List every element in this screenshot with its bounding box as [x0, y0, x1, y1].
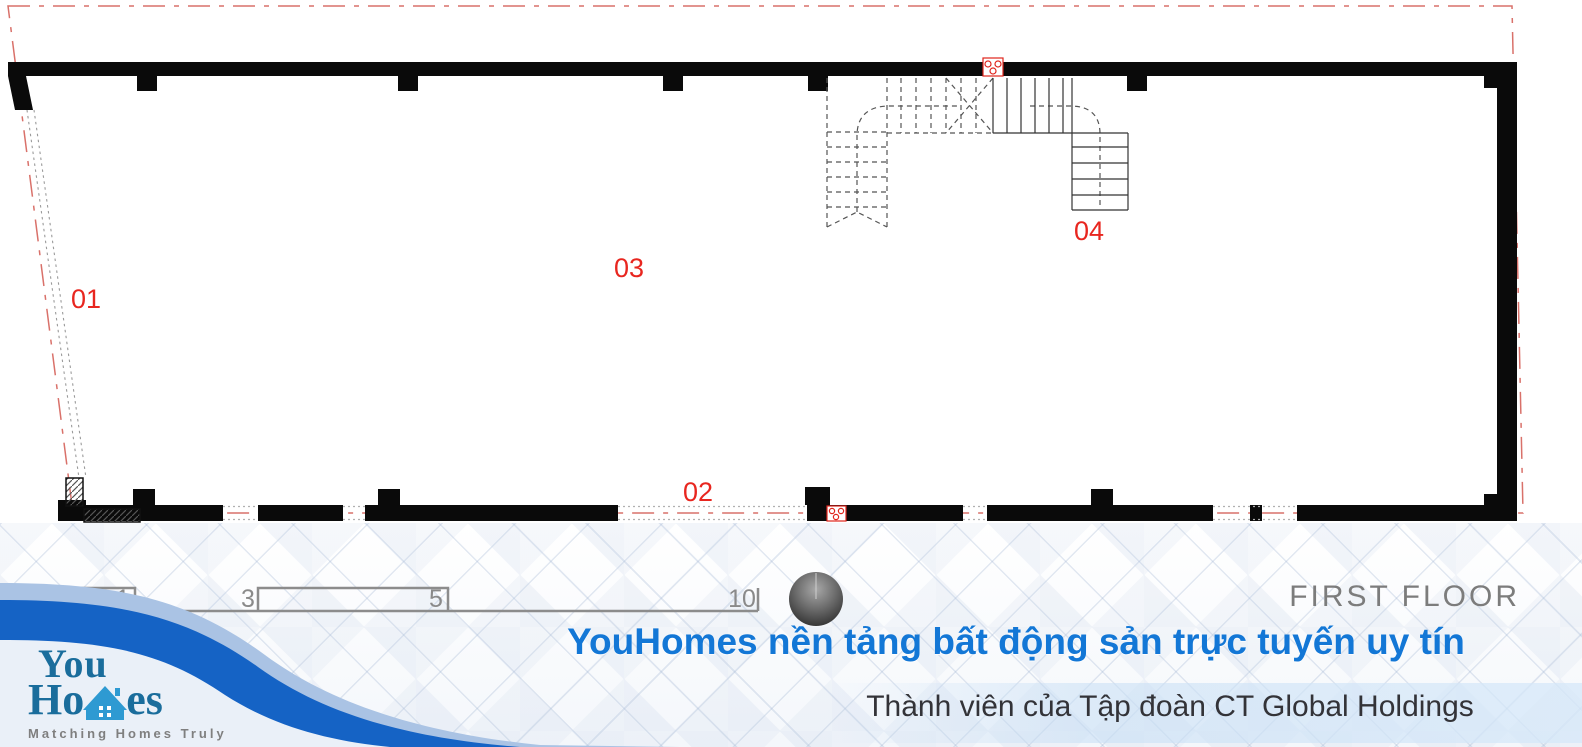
- scale-tick-10: 10: [728, 585, 756, 613]
- column: [133, 489, 155, 505]
- column: [663, 76, 683, 91]
- right-wall: [1497, 62, 1517, 520]
- bottom-wall-segment: [365, 505, 618, 521]
- bottom-wall-segment: [258, 505, 343, 521]
- youhomes-slogan: YouHomes nền tảng bất động sản trực tuyế…: [520, 621, 1512, 663]
- column: [1484, 494, 1497, 506]
- logo-line2-suffix: es: [126, 678, 163, 722]
- staircase: [827, 78, 1128, 227]
- logo-line2-prefix: Ho: [28, 678, 84, 722]
- left-slanted-wall-stub: [8, 76, 33, 110]
- room-label-01: 01: [71, 284, 101, 314]
- top-wall: [8, 62, 1517, 76]
- floor-title: FIRST FLOOR: [1289, 580, 1520, 614]
- column: [398, 76, 418, 91]
- room-label-02: 02: [683, 477, 713, 507]
- column: [1091, 489, 1113, 505]
- column: [805, 487, 830, 505]
- room-label-04: 04: [1074, 216, 1104, 246]
- logo-line2: Ho es: [28, 678, 227, 722]
- floor-plan-drawing: 01 02 03 04: [0, 0, 1582, 620]
- stair-solid-flight: [993, 78, 1128, 210]
- bottom-wall-post: [1250, 505, 1262, 521]
- north-indicator-sphere-icon: [789, 572, 843, 626]
- property-boundary-line: [8, 6, 1523, 513]
- bottom-wall-segment: [1297, 505, 1517, 521]
- membership-text: Thành viên của Tập đoàn CT Global Holdin…: [830, 690, 1510, 724]
- floorplan-page: 01 02 03 04 0 1 3 5 10 FIRST FLOOR: [0, 0, 1582, 747]
- column: [137, 76, 157, 91]
- house-icon: [82, 680, 128, 720]
- column: [378, 489, 400, 505]
- stair-dashed-flight: [827, 78, 1100, 227]
- youhomes-logo: You Ho es Matching Homes Truly: [28, 644, 227, 740]
- column: [808, 76, 828, 91]
- walls: [8, 62, 1517, 521]
- room-label-03: 03: [614, 253, 644, 283]
- column: [1127, 76, 1147, 91]
- bottom-wall-segment: [987, 505, 1213, 521]
- column: [1484, 76, 1497, 88]
- logo-tagline: Matching Homes Truly: [28, 727, 227, 740]
